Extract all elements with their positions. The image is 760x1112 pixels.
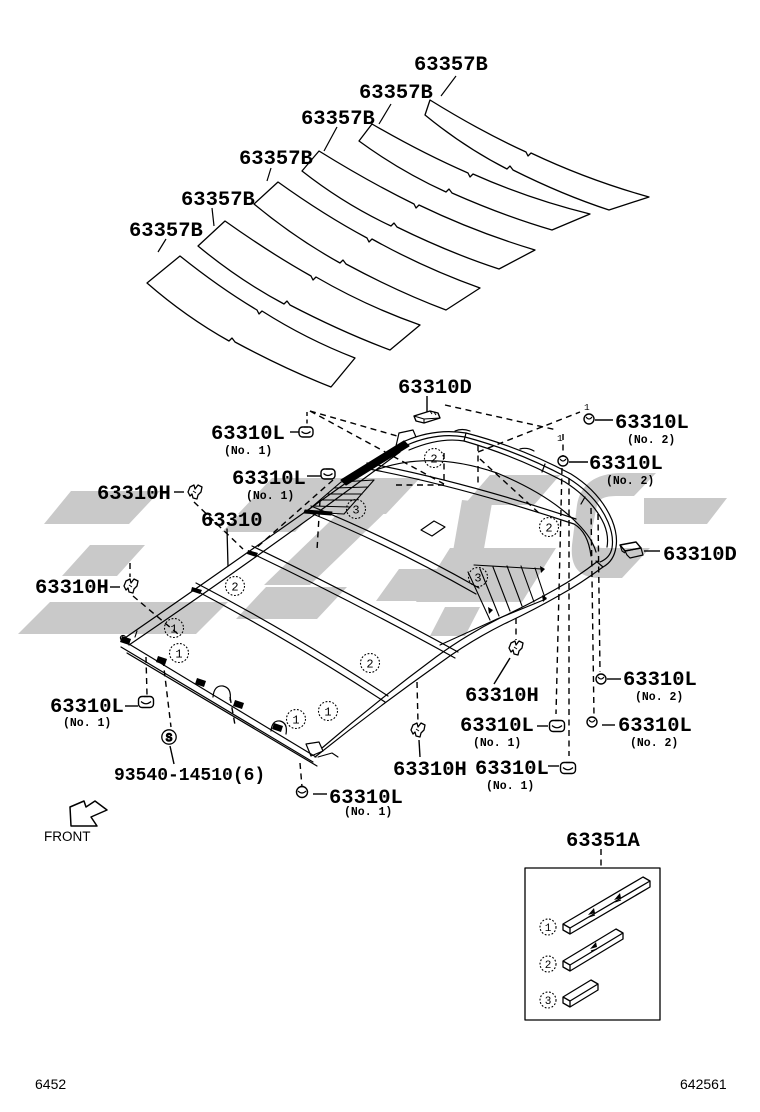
svg-text:63351A: 63351A [566,830,641,853]
svg-text:3: 3 [352,504,359,518]
svg-text:(No. 1): (No. 1) [63,717,111,730]
svg-text:(No. 2): (No. 2) [627,434,675,447]
svg-text:3: 3 [474,572,481,586]
svg-text:63310L: 63310L [50,696,124,719]
svg-text:2: 2 [231,581,238,595]
svg-text:6452: 6452 [35,1076,66,1092]
svg-text:FRONT: FRONT [44,829,91,844]
svg-text:1: 1 [292,714,299,728]
svg-text:63310L: 63310L [589,453,663,476]
svg-text:(No. 1): (No. 1) [344,806,392,819]
svg-text:63310L: 63310L [211,423,285,446]
svg-text:2: 2 [545,960,552,972]
svg-text:63310D: 63310D [398,377,472,400]
svg-text:63310L: 63310L [618,715,692,738]
svg-text:63310D: 63310D [663,544,737,567]
svg-text:63357B: 63357B [239,148,313,171]
svg-text:(No. 1): (No. 1) [224,445,272,458]
svg-text:63357B: 63357B [301,108,375,131]
svg-text:63310L: 63310L [623,669,697,692]
svg-text:1: 1 [557,433,563,444]
svg-text:63310H: 63310H [465,685,539,708]
svg-text:63310L: 63310L [232,468,306,491]
svg-text:1: 1 [545,923,552,935]
svg-text:63310H: 63310H [35,577,109,600]
svg-text:(No. 2): (No. 2) [630,737,678,750]
svg-text:2: 2 [430,453,437,467]
svg-text:1: 1 [584,402,590,413]
svg-text:642561: 642561 [680,1076,727,1092]
svg-text:63310L: 63310L [475,758,549,781]
svg-text:1: 1 [175,648,182,662]
svg-text:3: 3 [545,996,552,1008]
svg-text:63357B: 63357B [129,220,203,243]
svg-text:(No. 1): (No. 1) [473,737,521,750]
svg-text:2: 2 [545,522,552,536]
svg-text:63357B: 63357B [181,189,255,212]
svg-text:(No. 1): (No. 1) [486,780,534,793]
svg-text:S: S [166,733,173,745]
svg-text:1: 1 [170,623,177,637]
svg-text:63310H: 63310H [393,759,467,782]
svg-text:63310: 63310 [201,510,263,533]
svg-text:(No. 1): (No. 1) [246,490,294,503]
svg-text:(No. 2): (No. 2) [635,691,683,704]
svg-text:63310L: 63310L [460,715,534,738]
svg-text:63310L: 63310L [615,412,689,435]
svg-text:63357B: 63357B [359,82,433,105]
svg-text:2: 2 [366,658,373,672]
svg-text:93540-14510(6): 93540-14510(6) [114,766,265,786]
svg-text:(No. 2): (No. 2) [606,475,654,488]
svg-text:63357B: 63357B [414,54,488,77]
svg-text:63310H: 63310H [97,483,171,506]
svg-text:1: 1 [324,706,331,720]
